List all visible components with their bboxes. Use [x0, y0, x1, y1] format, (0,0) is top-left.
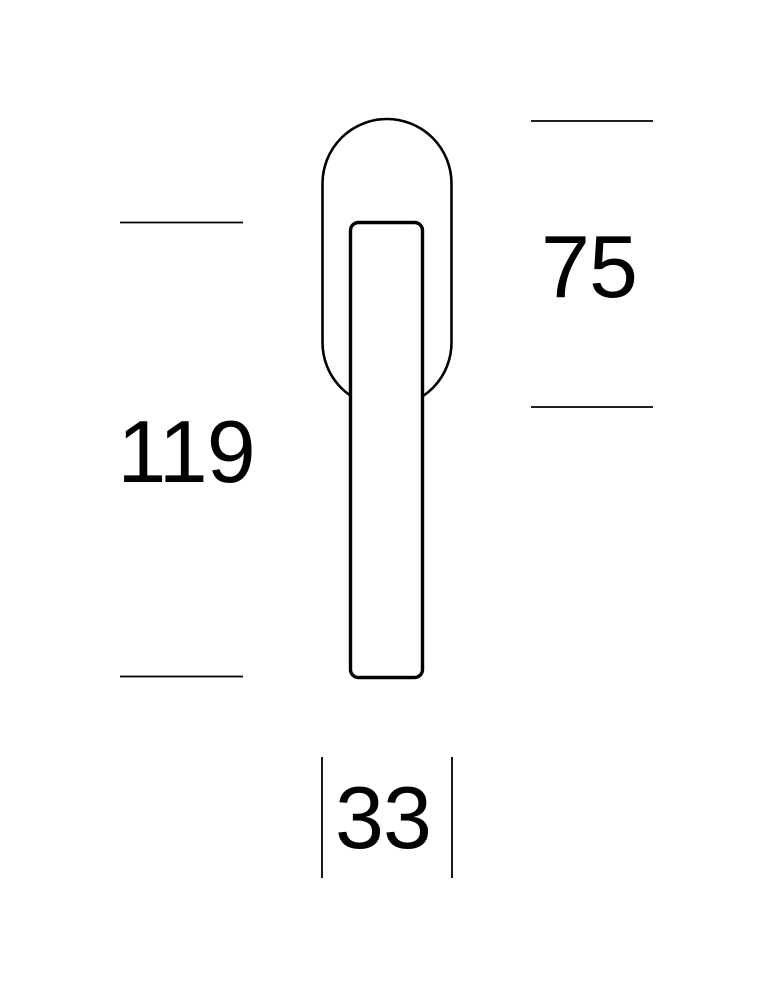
dim-label-rosette-height: 75: [541, 217, 637, 316]
technical-drawing-canvas: 119 75 33: [0, 0, 773, 1000]
dim-label-rosette-width: 33: [335, 768, 431, 867]
window-handle-drawing: 119 75 33: [0, 0, 773, 1000]
dim-label-lever-length: 119: [117, 402, 254, 501]
handle-lever-outline: [351, 223, 423, 678]
